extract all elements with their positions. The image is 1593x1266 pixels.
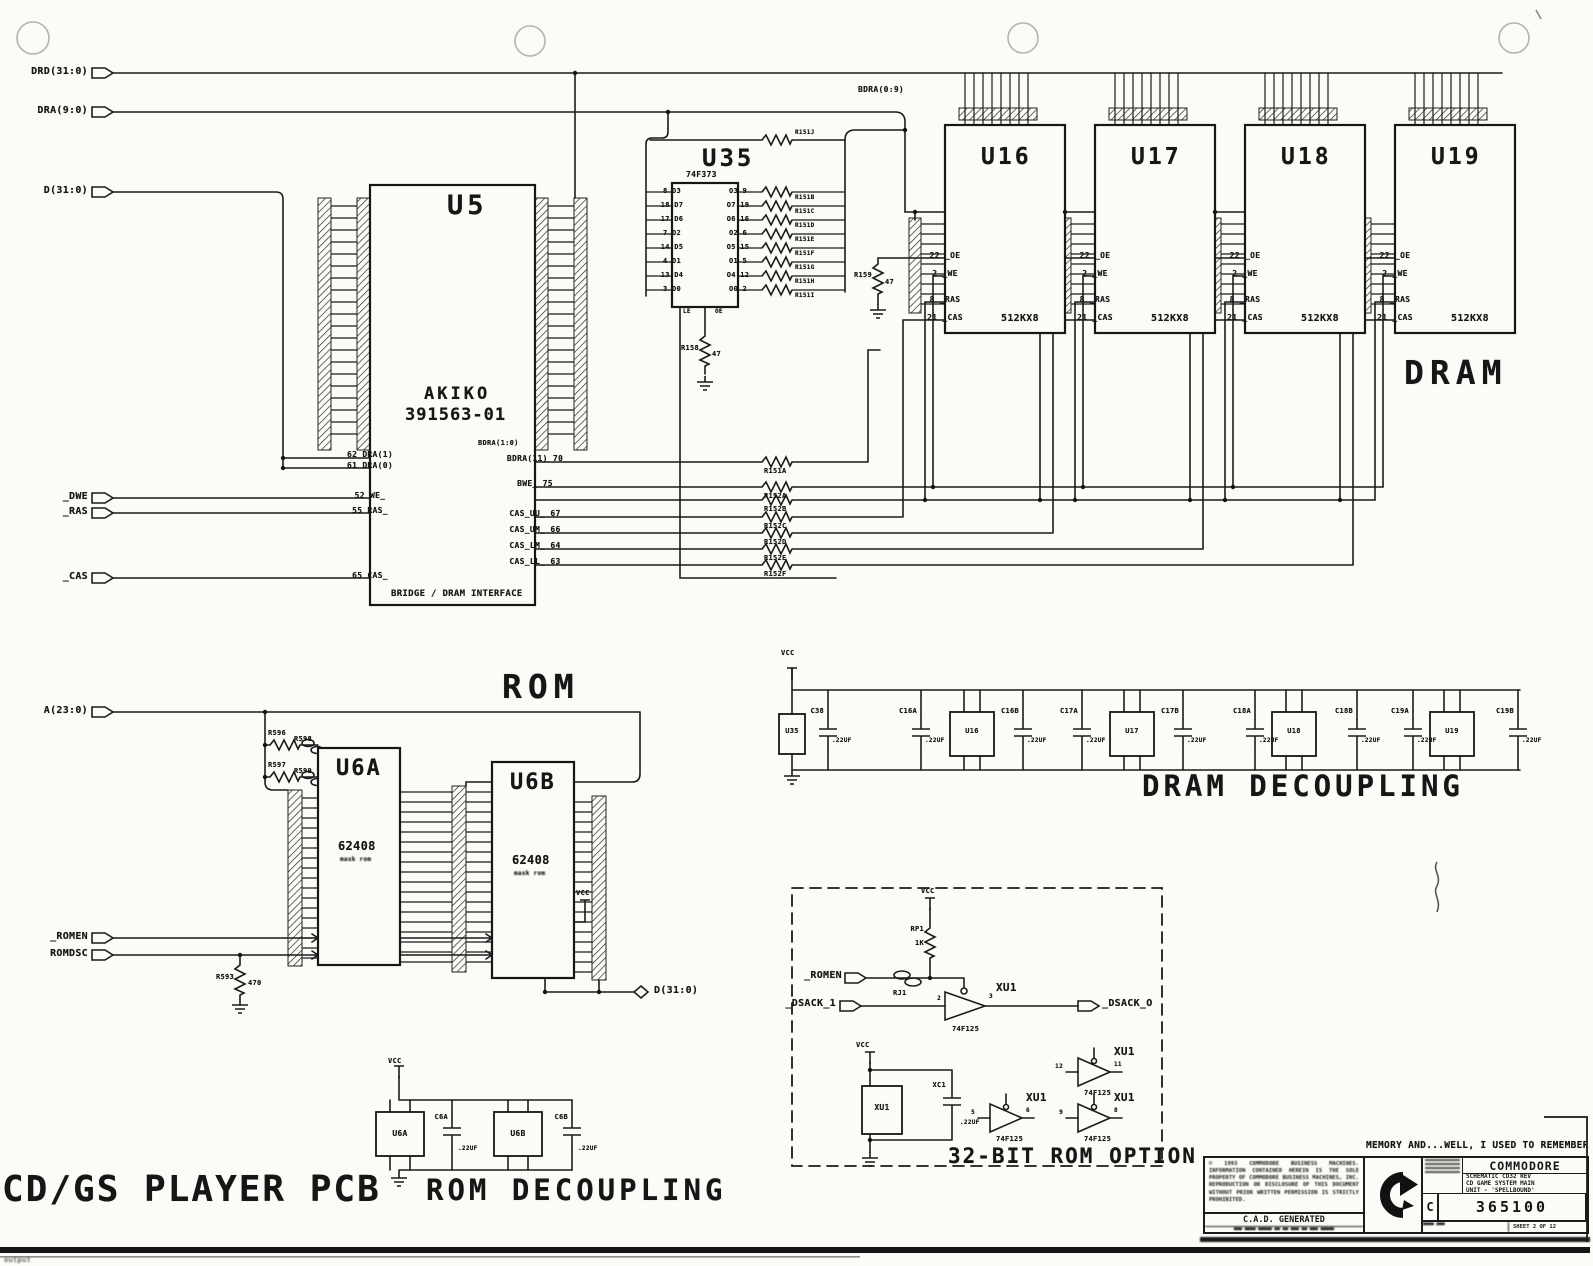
cap-value: .22UF [925,738,945,744]
cap-label: C6A [434,1114,448,1121]
u5-pin: BWE_ 75 [517,480,553,488]
bus-label-bdra10: BDRA(1:0) [478,440,519,447]
u35-pin: 14 D5 [661,244,684,251]
cap-label: C6B [554,1114,568,1121]
section-label-rom-decoupling: ROM DECOUPLING [426,1176,726,1205]
u35-pin: O1 5 [729,258,747,265]
titleblock-scale-cell: ■■■■ ■■■ [1423,1222,1509,1232]
u5-pin: 52 WE_ [355,492,386,500]
u5-pin: CAS_UM_ 66 [509,526,560,534]
u17-ref: U17 [1131,146,1182,169]
vcc-label: VCC [781,650,795,657]
titleblock-right: COMMODORE SCHEMATIC CD32 REV CD GAME SYS… [1423,1156,1589,1234]
u5-subtitle: BRIDGE / DRAM INTERFACE [391,590,523,599]
gate-part: 74F125 [996,1136,1023,1143]
port-label-romen: _ROMEN [50,932,88,942]
titleblock-smear-text: ■■■ ■■■■ ■■■■■ ■■ ■■ ■■■ ■■ ■■■ ■■■■■ [1205,1226,1363,1232]
u6a-ref: U6A [336,758,382,780]
gate-ref: XU1 [1026,1092,1047,1103]
resistor-label: R151C [795,209,815,215]
u5-pin: 65 CAS_ [352,572,388,580]
gate-part: 74F125 [952,1026,979,1033]
u5-pin: CAS_LM_ 64 [509,542,560,550]
u35-pin: 3 D0 [663,286,681,293]
gate-pin: 6 [1026,1108,1030,1114]
u35-pin: O6 16 [727,216,750,223]
decoupling-chip: U18 [1287,728,1301,735]
resistor-label: R151F [795,251,815,257]
cap-label: C16B [1001,708,1019,715]
u5-ref: U5 [447,192,488,219]
titleblock-copyright-box: © 1993 COMMODORE BUSINESS MACHINES. INFO… [1203,1156,1365,1234]
u35-pin: O2 6 [729,230,747,237]
gate-pin: 2 [937,996,941,1002]
u35-pin: 8 D3 [663,188,681,195]
cap-label: C17A [1060,708,1078,715]
dram-part: 512KX8 [1451,314,1489,324]
u5-pin: CAS_UU_ 67 [509,510,560,518]
resistor-label: R151H [795,279,815,285]
dram-pin-we: 2 _WE [932,270,958,278]
resistor-label: RP1 [910,926,924,933]
section-label-rom: ROM [502,670,580,703]
cap-value: .22UF [960,1120,980,1126]
vcc-label: VCC [921,888,935,895]
commodore-logo-mark [1366,1160,1420,1230]
cap-value: .22UF [1361,738,1381,744]
resistor-label: R152A [764,493,787,500]
port-label-cas: _CAS [63,572,88,582]
scan-corner-text: output [4,1257,31,1264]
u5-pin: 61 DRA(0) [347,462,393,470]
resistor-value: 47 [885,279,894,286]
dram-pin-we: 2 _WE [1082,270,1108,278]
dram-pin-we: 2 _WE [1382,270,1408,278]
resistor-value: 470 [248,980,262,987]
dram-part: 512KX8 [1151,314,1189,324]
u35-pin: O4 12 [727,272,750,279]
titleblock-underline [1200,1237,1590,1242]
dram-pin-ras: 8 _RAS [930,296,961,304]
cap-label: C38 [810,708,824,715]
port-label-dsack1: _DSACK_1 [785,999,836,1009]
u35-pin: O3 9 [729,188,747,195]
section-label-rom-option: 32-BIT ROM OPTION [948,1146,1197,1167]
port-label-ras: _RAS [63,507,88,517]
decoupling-chip: U6B [510,1130,525,1138]
bus-label-bdra: BDRA(0:9) [858,86,904,94]
dram-pin-oe: 22 _OE [1080,252,1111,260]
u35-oe-pin: OE [715,309,723,315]
cap-label: C16A [899,708,917,715]
dram-pin-cas: 21 _CAS [1227,314,1263,322]
jumper-label: RJ1 [893,990,907,997]
dram-pin-oe: 22 _OE [1230,252,1261,260]
cap-label: C18A [1233,708,1251,715]
u6b-part: 62408 [512,854,550,866]
cap-label: C17B [1161,708,1179,715]
gate-pin: 12 [1055,1064,1063,1070]
resistor-label: R151D [795,223,815,229]
resistor-value: 1K [915,940,924,947]
titleblock-note: MEMORY AND...WELL, I USED TO REMEMBER [1366,1141,1589,1151]
u19-ref: U19 [1431,146,1482,169]
schematic-title-line: UNIT - 'SPELLBOUND' [1463,1188,1587,1195]
port-label-drd: DRD(31:0) [31,67,88,77]
gate-pin: 8 [1114,1108,1118,1114]
cap-label: XC1 [932,1082,946,1089]
resistor-label: R152F [764,571,787,578]
cad-note: C.A.D. GENERATED [1205,1212,1363,1226]
titleblock: © 1993 COMMODORE BUSINESS MACHINES. INFO… [1203,1156,1589,1234]
dram-pin-ras: 8 _RAS [1080,296,1111,304]
schematic-linework [0,0,1593,1266]
resistor-label: R597 [268,762,286,769]
gate-ref: XU1 [996,982,1017,993]
gate-ref: XU1 [1114,1046,1135,1057]
gate-power-block: XU1 [874,1104,889,1112]
u35-ref: U35 [702,146,754,170]
u35-pin: O7 19 [727,202,750,209]
dram-pin-ras: 8 _RAS [1380,296,1411,304]
u5-part: 391563-01 [405,407,506,424]
u35-pin: O0 2 [729,286,747,293]
cap-value: .22UF [1259,738,1279,744]
u16-ref: U16 [981,146,1032,169]
section-label-dram-decoupling: DRAM DECOUPLING [1142,772,1464,801]
cap-value: .22UF [1086,738,1106,744]
copyright-text: © 1993 COMMODORE BUSINESS MACHINES. INFO… [1205,1158,1363,1212]
port-label-d-in: D(31:0) [44,186,88,196]
cap-value: .22UF [1522,738,1542,744]
resistor-label: R152E [764,555,787,562]
port-label-dwe: _DWE [63,492,88,502]
u6b-subpart: mask rom [514,871,545,877]
u35-pin: 17 D6 [661,216,684,223]
resistor-label: R596 [268,730,286,737]
dram-pin-cas: 21 _CAS [927,314,963,322]
vcc-label: VCC [388,1058,402,1065]
u35-pin: 4 D1 [663,258,681,265]
cap-value: .22UF [832,738,852,744]
port-label-a-bus: A(23:0) [44,706,88,716]
dram-pin-we: 2 _WE [1232,270,1258,278]
dram-pin-cas: 21 _CAS [1377,314,1413,322]
gate-pin: 3 [989,994,993,1000]
resistor-label: R151E [795,237,815,243]
decoupling-chip: U6A [392,1130,407,1138]
resistor-label: R152B [764,506,787,513]
gate-part: 74F125 [1084,1136,1111,1143]
scan-bottom-line [0,1256,860,1258]
cap-value: .22UF [1187,738,1207,744]
dram-pin-oe: 22 _OE [1380,252,1411,260]
port-label-dra: DRA(9:0) [37,106,88,116]
gate-part: 74F125 [1084,1090,1111,1097]
u6a-part: 62408 [338,840,376,852]
u35-pin: O5 15 [727,244,750,251]
scan-bottom-bar [0,1247,1590,1253]
gate-pin: 9 [1059,1110,1063,1116]
resistor-label: R152C [764,523,787,530]
u35-le-pin: LE [683,309,691,315]
cap-value: .22UF [1027,738,1047,744]
u35-part: 74F373 [686,171,717,179]
port-label-dsacko: _DSACK_O [1102,999,1153,1009]
company-name: COMMODORE [1463,1158,1587,1174]
u5-name: AKIKO [424,386,490,403]
doc-number: 365100 [1439,1194,1587,1220]
resistor-label: R593 [216,974,234,981]
gate-ref: XU1 [1114,1092,1135,1103]
resistor-label: R151G [795,265,815,271]
pcb-title: CD/GS PLAYER PCB [2,1172,381,1208]
titleblock-mini-grid [1423,1158,1463,1193]
resistor-label: R151B [795,195,815,201]
sheet-number: SHEET 2 OF 12 [1509,1222,1587,1232]
resistor-label: R151J [795,130,815,136]
section-label-dram: DRAM [1404,356,1507,389]
resistor-label: R158 [681,345,699,352]
u5-pin: CAS_LL_ 63 [509,558,560,566]
vcc-label: VCC [576,890,590,897]
port-label-romdsc: ROMDSC [50,949,88,959]
u5-pin: 55 RAS_ [352,507,388,515]
resistor-label: R151A [764,468,787,475]
gate-pin: 5 [971,1110,975,1116]
resistor-label: R152D [764,539,787,546]
u18-ref: U18 [1281,146,1332,169]
resistor-label: R159 [854,272,872,279]
decoupling-chip: U19 [1445,728,1459,735]
vcc-label: VCC [856,1042,870,1049]
decoupling-chip: U16 [965,728,979,735]
u5-pin: 62 DRA(1) [347,451,393,459]
commodore-logo [1365,1156,1423,1234]
u35-pin: 18 D7 [661,202,684,209]
dram-pin-oe: 22 _OE [930,252,961,260]
port-label-romen-opt: _ROMEN [804,971,842,981]
dram-pin-cas: 21 _CAS [1077,314,1113,322]
u35-pin: 13 D4 [661,272,684,279]
resistor-label: R599 [294,768,312,775]
cap-value: .22UF [458,1146,478,1152]
dram-part: 512KX8 [1001,314,1039,324]
cap-label: C19A [1391,708,1409,715]
doc-size-letter: C [1423,1194,1439,1220]
decoupling-chip: U35 [785,728,799,735]
port-label-d-out: D(31:0) [654,986,698,996]
dram-part: 512KX8 [1301,314,1339,324]
cap-value: .22UF [1417,738,1437,744]
cap-value: .22UF [578,1146,598,1152]
u35-pin: 7 D2 [663,230,681,237]
resistor-value: 47 [712,351,721,358]
resistor-label: R151I [795,293,815,299]
dram-pin-ras: 8 _RAS [1230,296,1261,304]
u6b-ref: U6B [510,772,556,794]
decoupling-chip: U17 [1125,728,1139,735]
schematic-sheet: DRD(31:0) DRA(9:0) D(31:0) _DWE _RAS _CA… [0,0,1593,1266]
u6a-subpart: mask rom [340,857,371,863]
gate-pin: 11 [1114,1062,1122,1068]
cap-label: C19B [1496,708,1514,715]
resistor-label: R598 [294,736,312,743]
frame-corner [1544,1116,1588,1118]
u5-pin: BDRA(11) 70 [507,455,563,463]
cap-label: C18B [1335,708,1353,715]
